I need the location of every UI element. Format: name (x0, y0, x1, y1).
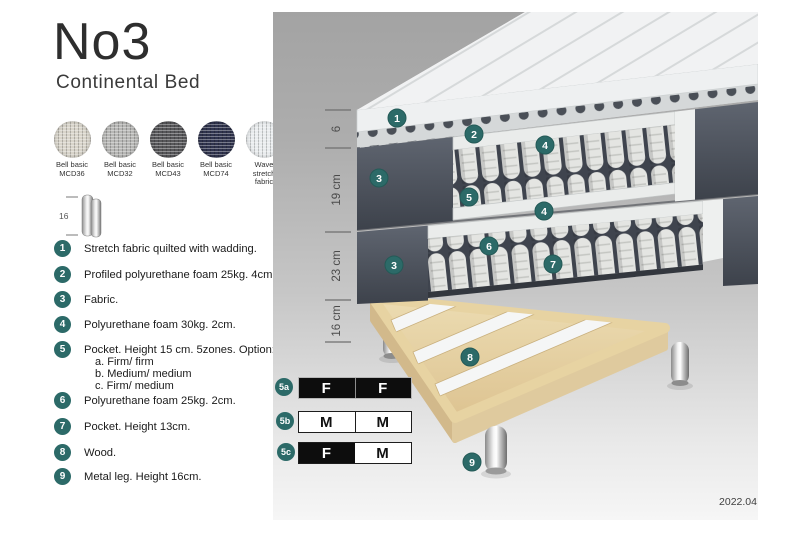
legend-badge-5: 5 (54, 341, 71, 358)
legend-item-8: 8 Wood. (54, 444, 116, 461)
legend-item-4: 4 Polyurethane foam 30kg. 2cm. (54, 316, 236, 333)
svg-text:3: 3 (391, 260, 397, 272)
svg-text:8: 8 (467, 352, 473, 364)
firmness-row-5c: F M (298, 442, 412, 464)
callout-7: 7 (544, 255, 562, 273)
legend-text-9: Metal leg. Height 16cm. (84, 471, 202, 483)
legend-badge-9: 9 (54, 468, 71, 485)
svg-text:3: 3 (376, 173, 382, 185)
dim-label-mattress: 19 cm (331, 174, 343, 205)
callout-9: 9 (463, 453, 481, 471)
legend-item-9: 9 Metal leg. Height 16cm. (54, 468, 202, 485)
callout-3-lower: 3 (385, 256, 403, 274)
svg-text:2: 2 (471, 129, 477, 141)
callout-1: 1 (388, 109, 406, 127)
callout-5: 5 (460, 188, 478, 206)
callout-6: 6 (480, 237, 498, 255)
callout-2: 2 (465, 125, 483, 143)
firmness-row-badge-5c: 5c (277, 443, 295, 461)
legend-badge-7: 7 (54, 418, 71, 435)
legend-list: 1 Stretch fabric quilted with wadding. 2… (54, 0, 284, 533)
legend-badge-3: 3 (54, 291, 71, 308)
legend-badge-2: 2 (54, 266, 71, 283)
callout-4-lower: 4 (535, 202, 553, 220)
legend-text-7: Pocket. Height 13cm. (84, 421, 190, 433)
legend-item-6: 6 Polyurethane foam 25kg. 2cm. (54, 392, 236, 409)
legend-badge-8: 8 (54, 444, 71, 461)
legend-text-3: Fabric. (84, 294, 118, 306)
svg-text:9: 9 (469, 457, 475, 469)
dimension-scale: 6 19 cm 23 cm 16 cm (325, 110, 351, 342)
dim-label-box: 23 cm (331, 250, 343, 281)
firmness-cell: F (299, 443, 355, 463)
box-foam-post (703, 199, 723, 262)
metal-leg-right (671, 342, 689, 386)
dim-label-leg: 16 cm (331, 305, 343, 336)
version-label: 2022.04 (719, 496, 757, 508)
mattress-fabric-right (695, 102, 758, 200)
firmness-cell: M (355, 443, 411, 463)
metal-leg-front (485, 426, 507, 475)
svg-text:7: 7 (550, 259, 556, 271)
legend-item-1: 1 Stretch fabric quilted with wadding. (54, 240, 257, 257)
firmness-cell: F (355, 378, 412, 398)
legend-item-5: 5 Pocket. Height 15 cm. 5zones. Option: (54, 341, 275, 358)
callout-4-upper: 4 (536, 136, 554, 154)
legend-text-5: Pocket. Height 15 cm. 5zones. Option: (84, 344, 275, 356)
legend-badge-4: 4 (54, 316, 71, 333)
legend-option-a: a. Firm/ firm (95, 356, 154, 368)
legend-badge-6: 6 (54, 392, 71, 409)
firmness-row-5b: M M (298, 411, 412, 433)
legend-item-2: 2 Profiled polyurethane foam 25kg. 4cm. (54, 266, 276, 283)
firmness-cell: M (299, 412, 355, 432)
svg-text:4: 4 (541, 206, 547, 218)
svg-text:5: 5 (466, 192, 472, 204)
legend-option-b: b. Medium/ medium (95, 368, 192, 380)
firmness-cell: F (299, 378, 355, 398)
svg-text:1: 1 (394, 113, 400, 125)
legend-item-7: 7 Pocket. Height 13cm. (54, 418, 190, 435)
callout-3-upper: 3 (370, 169, 388, 187)
legend-text-1: Stretch fabric quilted with wadding. (84, 243, 257, 255)
box-fabric-right (723, 196, 758, 286)
legend-text-6: Polyurethane foam 25kg. 2cm. (84, 395, 236, 407)
legend-item-3: 3 Fabric. (54, 291, 118, 308)
legend-text-2: Profiled polyurethane foam 25kg. 4cm. (84, 269, 276, 281)
legend-text-8: Wood. (84, 447, 116, 459)
legend-badge-1: 1 (54, 240, 71, 257)
callout-8: 8 (461, 348, 479, 366)
svg-text:6: 6 (486, 241, 492, 253)
firmness-row-5a: F F (298, 377, 412, 399)
dim-label-topper: 6 (331, 126, 343, 132)
firmness-cell: M (355, 412, 412, 432)
legend-text-4: Polyurethane foam 30kg. 2cm. (84, 319, 236, 331)
firmness-row-badge-5b: 5b (276, 412, 294, 430)
mattress-foam-post (675, 109, 695, 201)
firmness-row-badge-5a: 5a (275, 378, 293, 396)
legend-option-c: c. Firm/ medium (95, 380, 174, 392)
svg-text:4: 4 (542, 140, 548, 152)
